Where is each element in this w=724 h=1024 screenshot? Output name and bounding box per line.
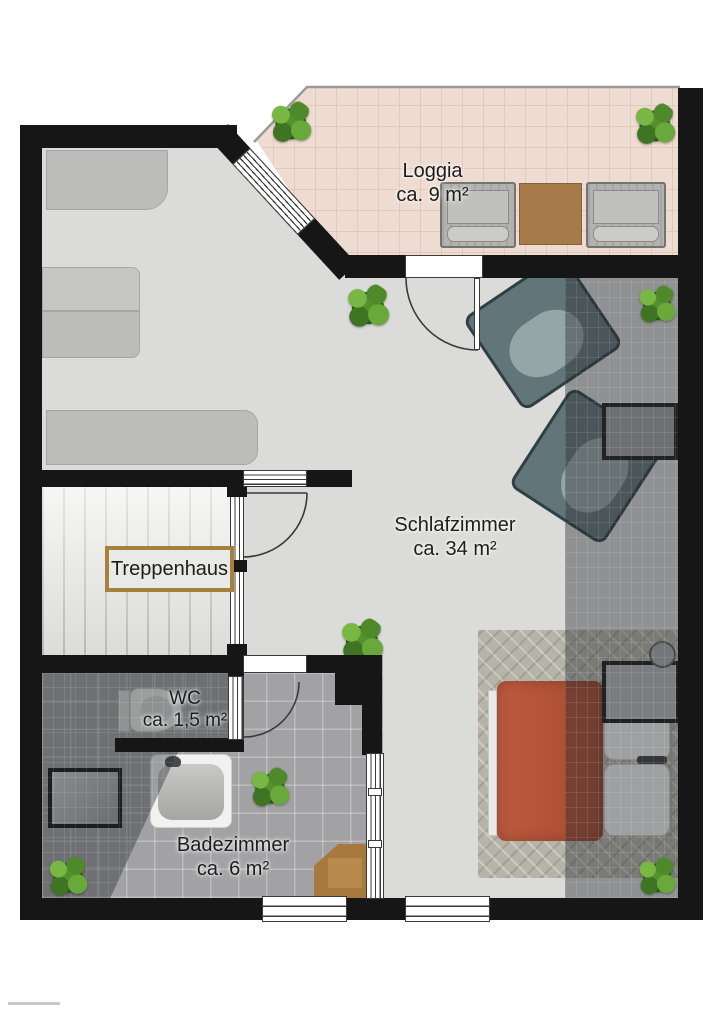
potted-plant [46, 855, 90, 899]
fine-print-watermark [8, 1002, 60, 1005]
potted-plant [636, 284, 678, 326]
daybed [42, 267, 140, 358]
wall-bath-right [362, 655, 382, 755]
partition-mullion [368, 840, 382, 848]
loggia-railing [254, 87, 680, 142]
room-name: WC [125, 688, 245, 710]
label-treppenhaus: Treppenhaus [105, 546, 234, 592]
loggia-table [519, 183, 582, 245]
window-diagonal [232, 148, 315, 235]
room-area: ca. 34 m² [375, 538, 535, 562]
daybed-seat [42, 311, 140, 358]
loggia-armchair-seat [593, 226, 658, 242]
bathtub-basin [158, 764, 224, 820]
wall-bottom-2 [347, 898, 405, 920]
wall-wc-jamb-bottom [228, 738, 244, 752]
room-area: ca. 9 m² [355, 184, 510, 208]
wardrobe [46, 150, 168, 210]
loggia-armchair-back [593, 190, 658, 225]
armchair-cushion [498, 298, 596, 390]
window-bottom-2 [405, 896, 490, 922]
label-wc: WC ca. 1,5 m² [125, 688, 245, 733]
pillow-2 [604, 764, 670, 836]
room-area: ca. 1,5 m² [125, 710, 245, 732]
wall-loggia-bottom-left [345, 255, 405, 278]
window-bottom-1 [262, 896, 347, 922]
room-name: Loggia [355, 160, 510, 184]
wall-right [678, 88, 703, 920]
wall-loggia-bottom-right [483, 255, 678, 278]
stair-door-swing [243, 493, 307, 557]
loggia-door-opening [405, 255, 483, 278]
wall-stair-top-right [307, 470, 352, 487]
wall-stair-top-left [42, 470, 243, 487]
bathtub-faucet [165, 756, 181, 767]
partition-post [227, 487, 247, 497]
wooden-bench-top [328, 858, 362, 888]
side-table [602, 403, 678, 460]
table-lamp [649, 641, 676, 668]
bath-glass-partition [366, 753, 384, 899]
potted-plant [268, 100, 314, 146]
loggia-armchair-right [586, 182, 666, 248]
wall-bottom-1 [20, 898, 262, 920]
wall-left [20, 125, 42, 920]
potted-plant [632, 102, 678, 148]
daybed-back [42, 267, 140, 311]
loggia-door-leaf [474, 278, 480, 350]
room-name: Treppenhaus [111, 558, 228, 581]
label-loggia: Loggia ca. 9 m² [355, 160, 510, 207]
wall-bottom-3 [490, 898, 703, 920]
wall-top [20, 125, 237, 148]
floor-plan: Loggia ca. 9 m² Schlafzimmer ca. 34 m² T… [0, 0, 724, 1024]
bed-tray [637, 756, 667, 764]
sideboard [46, 410, 258, 465]
potted-plant [344, 283, 392, 331]
potted-plant [636, 856, 678, 898]
room-name: Schlafzimmer [375, 514, 535, 538]
room-name: Badezimmer [148, 834, 318, 858]
loggia-door-swing [406, 278, 478, 350]
bed-footboard [488, 690, 497, 836]
label-schlafzimmer: Schlafzimmer ca. 34 m² [375, 514, 535, 561]
bed-duvet [497, 681, 603, 841]
stair-doorway [243, 470, 307, 487]
potted-plant [248, 766, 292, 810]
wall-wc-bottom [115, 738, 244, 752]
loggia-armchair-seat [447, 226, 509, 242]
room-area: ca. 6 m² [148, 858, 318, 882]
partition-post [227, 644, 247, 655]
wall-stair-bottom [42, 655, 243, 673]
label-badezimmer: Badezimmer ca. 6 m² [148, 834, 318, 881]
bath-passage-opening [243, 655, 307, 673]
shower [48, 768, 122, 828]
partition-mullion [368, 788, 382, 796]
nightstand [602, 661, 680, 723]
